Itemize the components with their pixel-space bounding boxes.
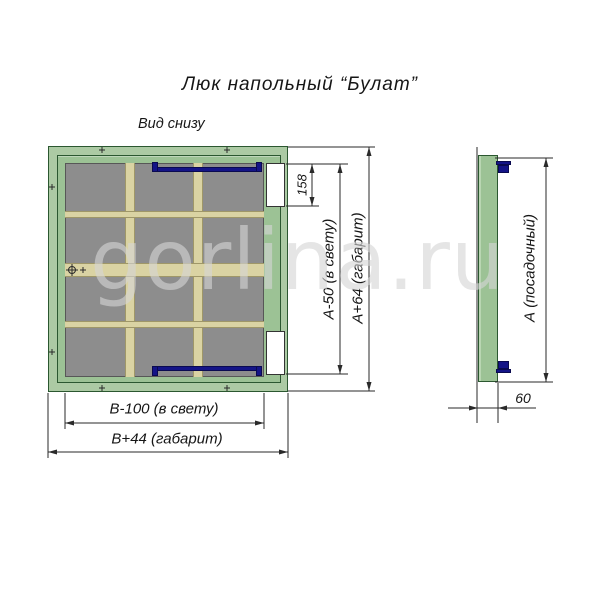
latch-hook-top-left <box>152 162 158 172</box>
dim-text-seat-height: А (посадочный) <box>522 214 539 322</box>
latch-hook-bottom-left <box>152 366 158 376</box>
side-hinge-bottom-block <box>498 361 509 369</box>
dim-line-overall-width <box>48 450 288 455</box>
side-hinge-top-block <box>498 165 509 173</box>
stiffener-horizontal-center <box>65 263 264 277</box>
stiffener-horizontal-3 <box>65 321 264 328</box>
hinge-cutout-top <box>266 163 285 207</box>
dim-text-depth: 60 <box>515 390 531 406</box>
latch-hook-bottom-right <box>256 366 262 376</box>
dim-line-depth <box>448 406 536 411</box>
dim-text-clear-width: В-100 (в свету) <box>109 401 218 418</box>
drawing-canvas: Люк напольный “Булат” Вид снизу <box>0 0 600 600</box>
dim-text-cutout-height: 158 <box>295 174 310 196</box>
latch-hook-top-right <box>256 162 262 172</box>
dim-text-clear-height: А-50 (в свету) <box>321 219 338 320</box>
dim-line-clear-width <box>65 421 264 426</box>
dim-text-overall-width: В+44 (габарит) <box>111 431 222 448</box>
stiffener-horizontal-1 <box>65 211 264 218</box>
latch-bar-bottom <box>156 366 259 371</box>
dim-line-overall-height <box>367 147 372 391</box>
dim-line-clear-height <box>338 164 343 374</box>
drawing-title: Люк напольный “Булат” <box>0 74 600 96</box>
side-hinge-bottom-arm <box>496 369 511 373</box>
dim-text-overall-height: А+64 (габарит) <box>350 212 367 323</box>
hinge-cutout-bottom <box>266 331 285 375</box>
dim-line-cutout-height <box>310 164 315 206</box>
latch-bar-top <box>156 167 259 172</box>
view-label-bottom: Вид снизу <box>138 116 205 132</box>
side-view-frame-bar <box>478 155 498 382</box>
dim-line-seat-height <box>544 158 549 382</box>
